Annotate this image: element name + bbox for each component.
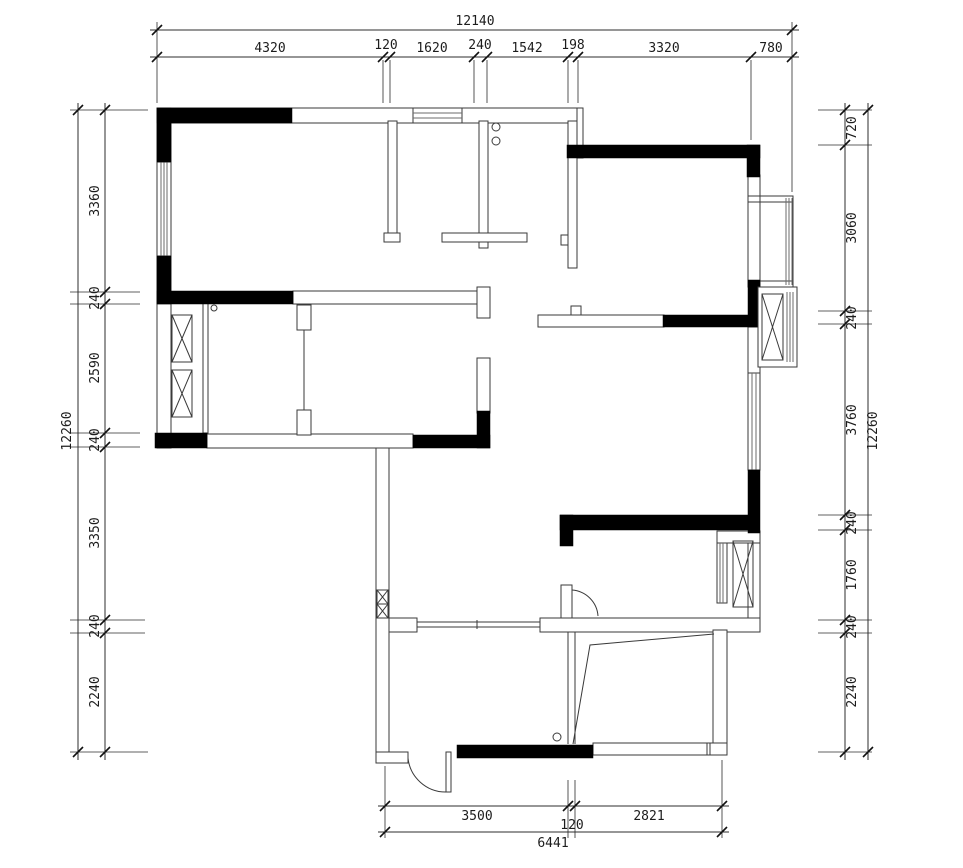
floor-plan-canvas: 12140 4320 120 1620 240 1542 198 3320 78… [0,0,963,868]
closet-duct-boxes [172,315,192,417]
dim-right-seg-7: 2240 [845,676,860,707]
dim-left-seg-5: 240 [88,614,103,637]
sliding-door-entry [417,620,540,629]
dim-right-seg-2: 240 [845,306,860,329]
dim-top-seg-4: 1542 [511,41,542,56]
window-kitchen [717,543,727,603]
floor-plan-page: 12140 4320 120 1620 240 1542 198 3320 78… [0,0,963,868]
dim-chain-bottom: 3500 120 2821 6441 [378,760,729,851]
window-right [748,373,760,470]
dim-bottom-seg-0: 3500 [461,809,492,824]
window-left [157,162,171,256]
dim-left-seg-3: 240 [88,428,103,451]
dim-top-seg-2: 1620 [416,41,447,56]
dim-bottom-seg-1: 120 [560,818,583,833]
dim-top-seg-1: 120 [374,38,397,53]
dim-right-seg-1: 3060 [845,212,860,243]
dim-right-total: 12260 [866,411,881,450]
dim-right-seg-5: 1760 [845,559,860,590]
kitchen-door [561,585,598,618]
dim-right-seg-3: 3760 [845,404,860,435]
flue-box-top-right [758,287,797,367]
dim-top-seg-5: 198 [561,38,584,53]
bay-window [748,196,793,287]
dim-chain-top: 12140 4320 120 1620 240 1542 198 3320 78… [150,14,799,192]
dim-left-total: 12260 [60,411,75,450]
walls-solid [155,108,760,758]
dim-bottom-seg-2: 2821 [633,809,664,824]
dim-right-seg-4: 240 [845,511,860,534]
dim-left-seg-6: 2240 [88,676,103,707]
dim-chain-left: 12260 3360 240 2590 240 3350 240 2240 [60,103,148,760]
window-top [413,108,462,123]
dim-top-seg-7: 780 [759,41,782,56]
dim-top-seg-3: 240 [468,38,491,53]
dim-chain-right: 12260 720 3060 240 3760 240 1760 240 224… [818,103,881,760]
dim-left-seg-1: 240 [88,286,103,309]
dim-bottom-total: 6441 [537,836,568,851]
dim-right-seg-0: 720 [845,116,860,139]
dim-left-seg-4: 3350 [88,517,103,548]
flue-shafts [172,287,797,618]
doors [304,330,598,792]
dim-left-seg-2: 2590 [88,352,103,383]
dim-right-seg-6: 240 [845,615,860,638]
dim-top-seg-6: 3320 [648,41,679,56]
entry-door [408,752,451,792]
dim-left-seg-0: 3360 [88,185,103,216]
dim-top-total: 12140 [455,14,494,29]
dim-top-seg-0: 4320 [254,41,285,56]
